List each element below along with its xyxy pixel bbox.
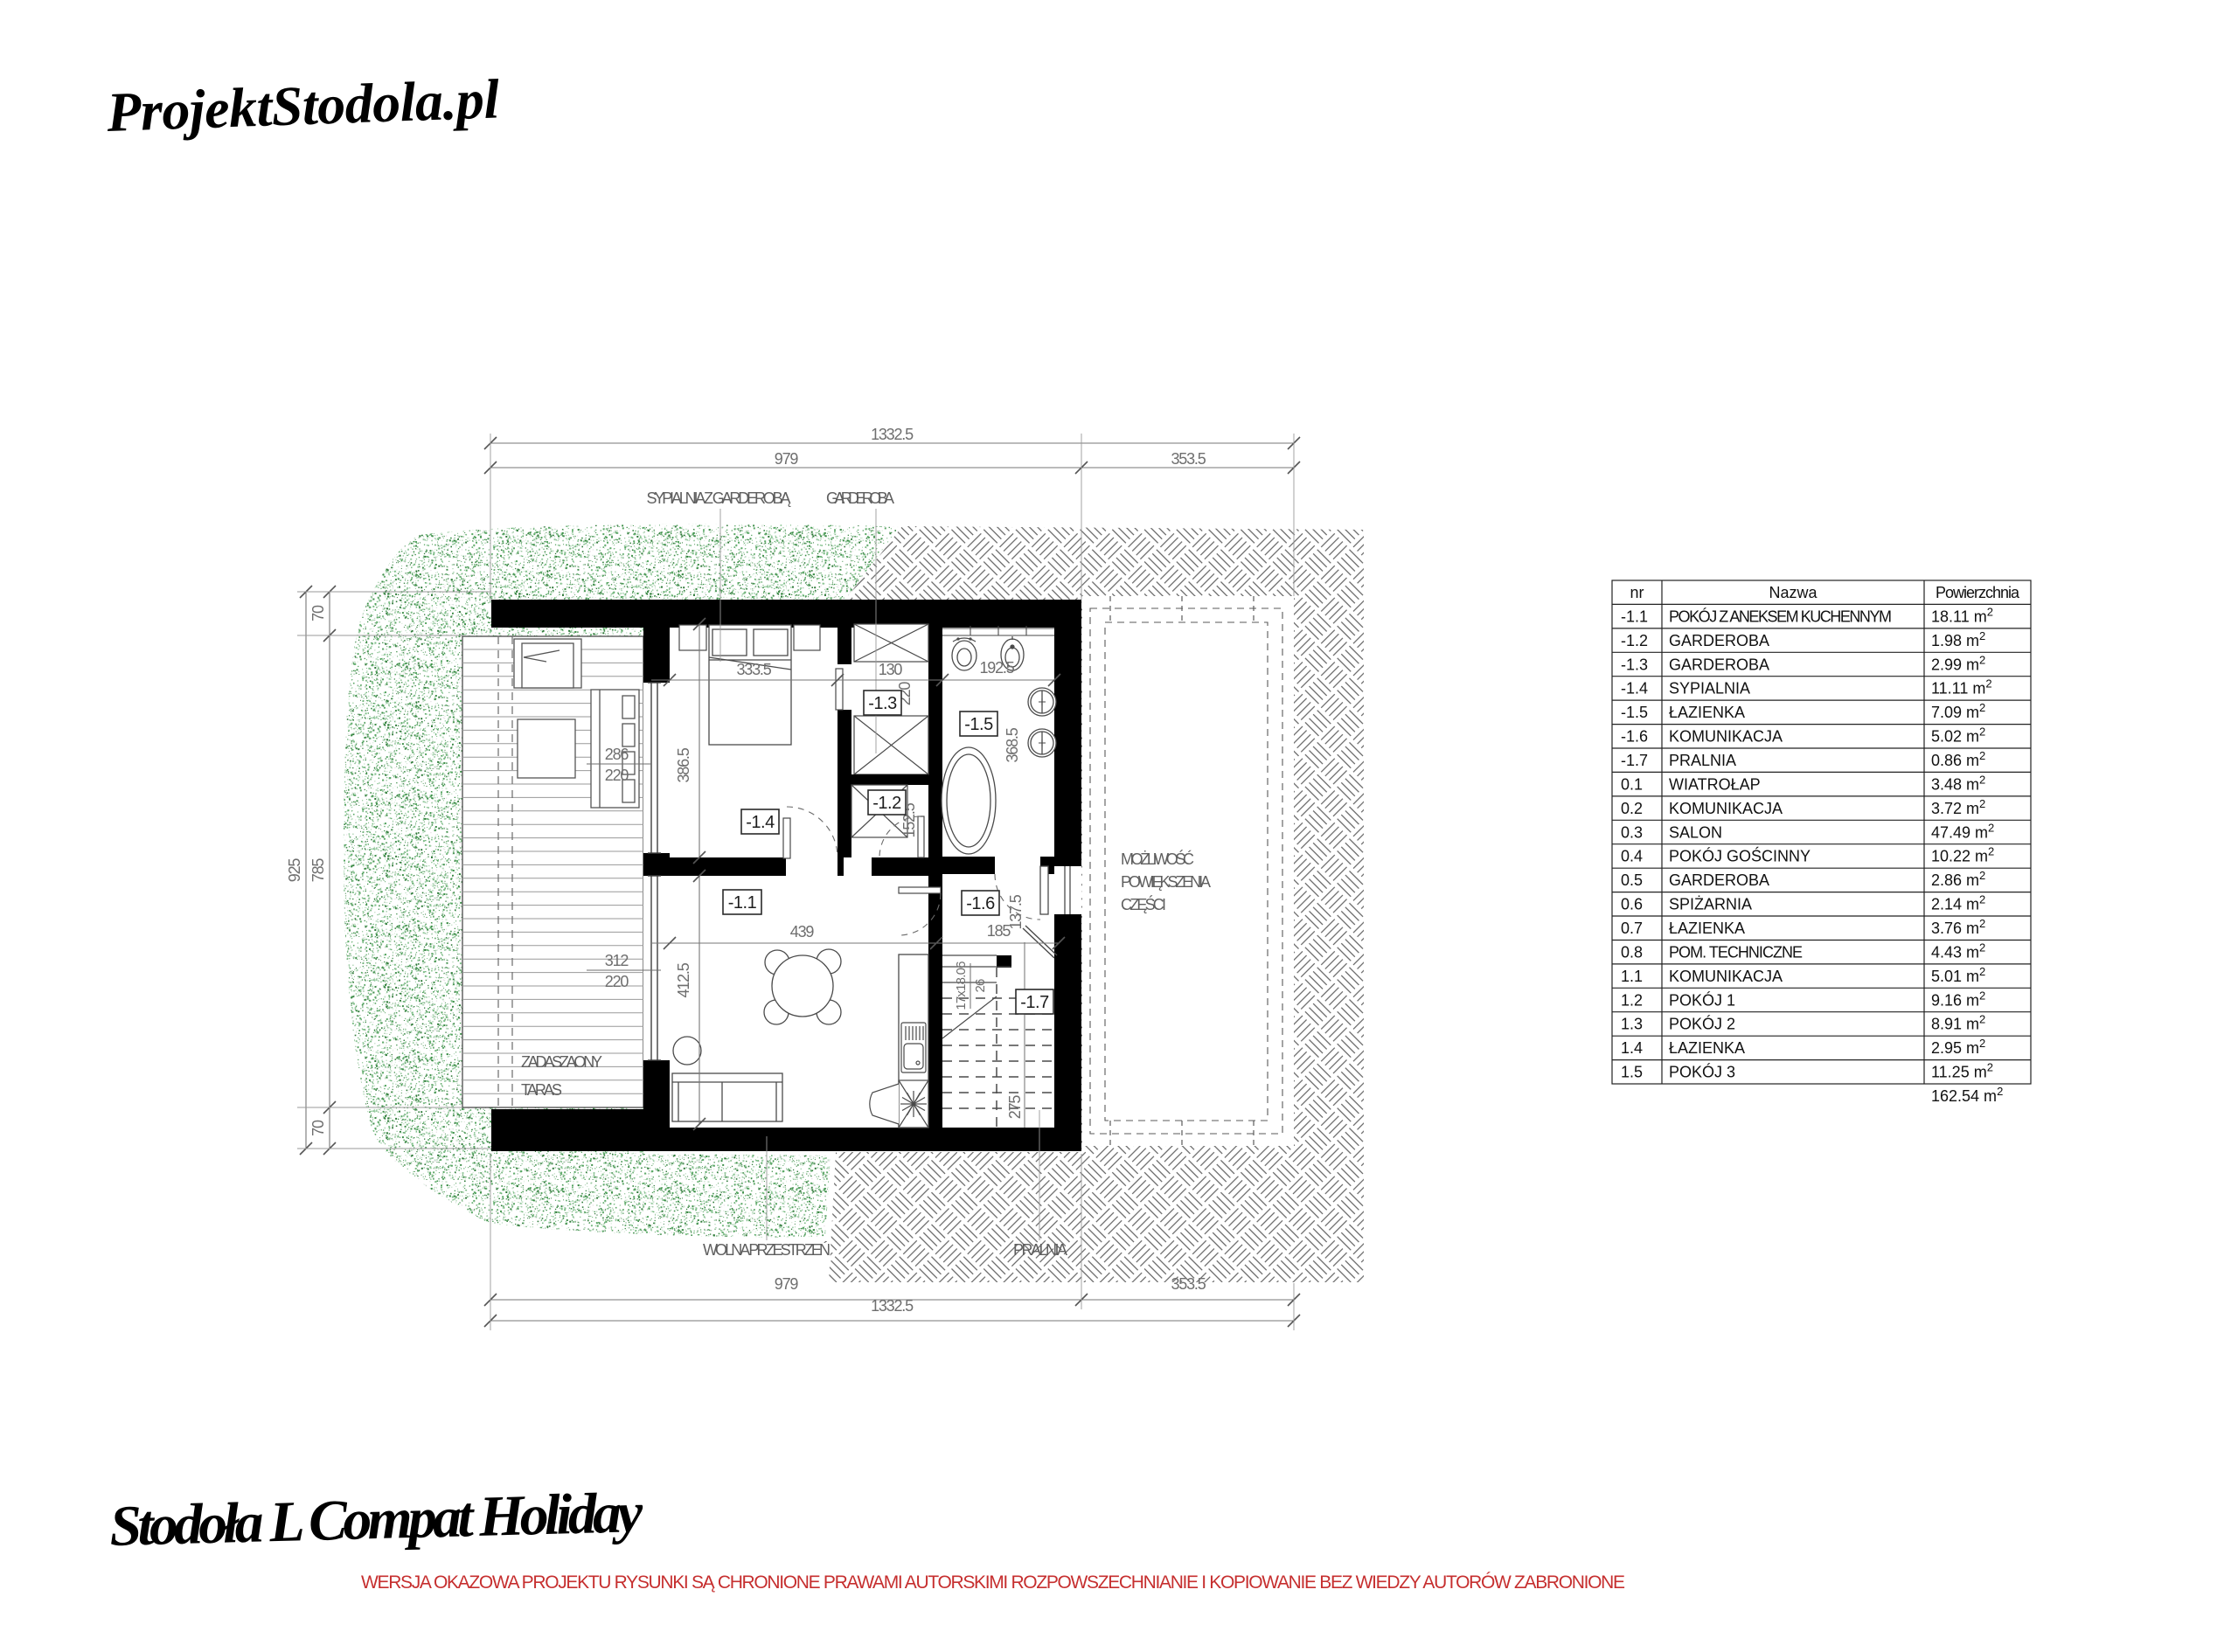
svg-text:333.5: 333.5 <box>736 661 771 678</box>
svg-text:ŁAZIENKA: ŁAZIENKA <box>1669 704 1745 721</box>
svg-text:Powierzchnia: Powierzchnia <box>1936 584 2020 601</box>
svg-text:47.49 m2: 47.49 m2 <box>1931 821 1994 841</box>
svg-text:SYPIALNIA Z GARDEROBĄ: SYPIALNIA Z GARDEROBĄ <box>647 489 792 507</box>
svg-text:POKÓJ GOŚCINNY: POKÓJ GOŚCINNY <box>1669 847 1811 865</box>
svg-text:70: 70 <box>309 605 327 621</box>
svg-text:0.2: 0.2 <box>1621 800 1643 817</box>
svg-text:10.22 m2: 10.22 m2 <box>1931 845 1994 865</box>
svg-text:-1.6: -1.6 <box>1621 728 1648 746</box>
svg-text:POKÓJ Z ANEKSEM KUCHENNYM: POKÓJ Z ANEKSEM KUCHENNYM <box>1669 607 1892 625</box>
svg-text:PRALNIA: PRALNIA <box>1669 752 1736 769</box>
svg-text:GARDEROBA: GARDEROBA <box>1669 871 1769 889</box>
svg-text:1.4: 1.4 <box>1621 1039 1643 1057</box>
svg-text:925: 925 <box>286 858 303 883</box>
svg-text:ŁAZIENKA: ŁAZIENKA <box>1669 1039 1745 1057</box>
svg-text:SYPIALNIA: SYPIALNIA <box>1669 680 1750 698</box>
svg-text:11.25 m2: 11.25 m2 <box>1931 1061 1993 1081</box>
svg-text:-1.1: -1.1 <box>1621 607 1648 625</box>
svg-text:TARAS: TARAS <box>521 1081 562 1099</box>
svg-text:0.86 m2: 0.86 m2 <box>1931 749 1985 769</box>
svg-text:0.5: 0.5 <box>1621 871 1643 889</box>
svg-text:2.99 m2: 2.99 m2 <box>1931 653 1985 673</box>
svg-text:-1.3: -1.3 <box>1621 656 1648 673</box>
svg-text:1.98 m2: 1.98 m2 <box>1931 629 1985 649</box>
svg-text:Nazwa: Nazwa <box>1769 584 1818 601</box>
svg-text:11.11 m2: 11.11 m2 <box>1931 677 1992 698</box>
svg-text:0.1: 0.1 <box>1621 775 1643 793</box>
svg-text:8.91 m2: 8.91 m2 <box>1931 1013 1985 1033</box>
svg-text:7.09 m2: 7.09 m2 <box>1931 701 1985 721</box>
svg-text:GARDEROBA: GARDEROBA <box>1669 656 1769 673</box>
svg-text:220: 220 <box>605 973 629 990</box>
svg-text:POKÓJ 3: POKÓJ 3 <box>1669 1063 1735 1081</box>
svg-text:KOMUNIKACJA: KOMUNIKACJA <box>1669 728 1783 746</box>
svg-text:1332.5: 1332.5 <box>871 1297 914 1315</box>
svg-text:0.7: 0.7 <box>1621 920 1643 937</box>
svg-text:2.86 m2: 2.86 m2 <box>1931 869 1985 889</box>
svg-text:0.3: 0.3 <box>1621 823 1643 841</box>
svg-text:-1.1: -1.1 <box>728 893 757 913</box>
svg-text:0.8: 0.8 <box>1621 944 1643 961</box>
svg-text:1.1: 1.1 <box>1621 968 1643 985</box>
svg-text:18.11 m2: 18.11 m2 <box>1931 605 1993 625</box>
svg-text:-1.4: -1.4 <box>1621 680 1648 698</box>
svg-text:286: 286 <box>605 746 629 763</box>
svg-text:PRALNIA: PRALNIA <box>1013 1241 1067 1259</box>
svg-text:-1.5: -1.5 <box>1621 704 1648 721</box>
svg-text:WERSJA OKAZOWA PROJEKTU RYSUNK: WERSJA OKAZOWA PROJEKTU RYSUNKI SĄ CHRON… <box>361 1572 1625 1593</box>
svg-text:-1.7: -1.7 <box>1020 993 1049 1012</box>
svg-text:-1.4: -1.4 <box>746 813 775 832</box>
svg-text:162.54 m2: 162.54 m2 <box>1931 1085 2003 1105</box>
svg-text:220: 220 <box>605 767 629 784</box>
svg-text:-1.3: -1.3 <box>868 694 897 713</box>
svg-text:-1.6: -1.6 <box>966 894 995 913</box>
svg-text:GARDEROBA: GARDEROBA <box>1669 632 1769 649</box>
svg-text:5.02 m2: 5.02 m2 <box>1931 725 1985 746</box>
svg-text:1.3: 1.3 <box>1621 1016 1643 1033</box>
svg-text:353.5: 353.5 <box>1171 1275 1206 1293</box>
svg-text:275: 275 <box>1006 1095 1024 1120</box>
svg-text:-1.2: -1.2 <box>1621 632 1648 649</box>
svg-text:3.48 m2: 3.48 m2 <box>1931 773 1985 793</box>
svg-text:WIATROŁAP: WIATROŁAP <box>1669 775 1761 793</box>
svg-text:2.95 m2: 2.95 m2 <box>1931 1037 1985 1057</box>
svg-text:GARDEROBA: GARDEROBA <box>826 489 894 507</box>
svg-text:130: 130 <box>879 661 903 678</box>
svg-text:3.72 m2: 3.72 m2 <box>1931 797 1985 817</box>
svg-text:POKÓJ 1: POKÓJ 1 <box>1669 990 1735 1009</box>
svg-text:POKÓJ 2: POKÓJ 2 <box>1669 1015 1735 1033</box>
svg-text:SALON: SALON <box>1669 823 1722 841</box>
svg-text:ŁAZIENKA: ŁAZIENKA <box>1669 920 1745 937</box>
svg-text:386.5: 386.5 <box>675 747 692 782</box>
svg-text:412.5: 412.5 <box>675 962 692 997</box>
svg-text:785: 785 <box>309 858 327 883</box>
svg-text:-1.5: -1.5 <box>964 715 993 734</box>
svg-text:979: 979 <box>775 1275 799 1293</box>
svg-text:1332.5: 1332.5 <box>871 426 914 443</box>
svg-text:-1.2: -1.2 <box>872 794 901 813</box>
svg-text:137.5: 137.5 <box>1007 894 1025 929</box>
svg-text:979: 979 <box>775 450 799 468</box>
svg-text:nr: nr <box>1630 584 1644 601</box>
svg-text:70: 70 <box>309 1120 327 1136</box>
svg-text:5.01 m2: 5.01 m2 <box>1931 965 1985 985</box>
svg-text:1.5: 1.5 <box>1621 1064 1643 1081</box>
svg-text:439: 439 <box>790 923 815 941</box>
svg-text:SPIŻARNIA: SPIŻARNIA <box>1669 896 1752 913</box>
svg-text:353.5: 353.5 <box>1171 450 1206 468</box>
svg-text:4.43 m2: 4.43 m2 <box>1931 941 1985 961</box>
svg-text:9.16 m2: 9.16 m2 <box>1931 989 1985 1009</box>
svg-text:26: 26 <box>973 979 988 993</box>
svg-text:CZĘŚCI: CZĘŚCI <box>1121 895 1166 913</box>
svg-text:312: 312 <box>605 952 629 969</box>
svg-text:KOMUNIKACJA: KOMUNIKACJA <box>1669 800 1783 817</box>
svg-text:WOLNA PRZESTRZEŃ: WOLNA PRZESTRZEŃ <box>703 1241 831 1259</box>
svg-text:2.14 m2: 2.14 m2 <box>1931 893 1985 913</box>
svg-text:POM. TECHNICZNE: POM. TECHNICZNE <box>1669 944 1803 961</box>
svg-text:0.6: 0.6 <box>1621 896 1643 913</box>
svg-text:-1.7: -1.7 <box>1621 752 1648 769</box>
svg-text:ZADASZAONY: ZADASZAONY <box>521 1053 602 1071</box>
svg-text:3.76 m2: 3.76 m2 <box>1931 917 1985 937</box>
svg-text:192.5: 192.5 <box>979 659 1014 677</box>
svg-text:17x18.06: 17x18.06 <box>954 961 969 1010</box>
svg-text:1.2: 1.2 <box>1621 991 1643 1009</box>
svg-text:368.5: 368.5 <box>1004 727 1021 762</box>
svg-text:POWIĘKSZENIA: POWIĘKSZENIA <box>1121 873 1211 891</box>
svg-text:MOŻLIWOŚĆ: MOŻLIWOŚĆ <box>1121 850 1194 868</box>
svg-text:0.4: 0.4 <box>1621 848 1643 865</box>
svg-text:KOMUNIKACJA: KOMUNIKACJA <box>1669 968 1783 985</box>
